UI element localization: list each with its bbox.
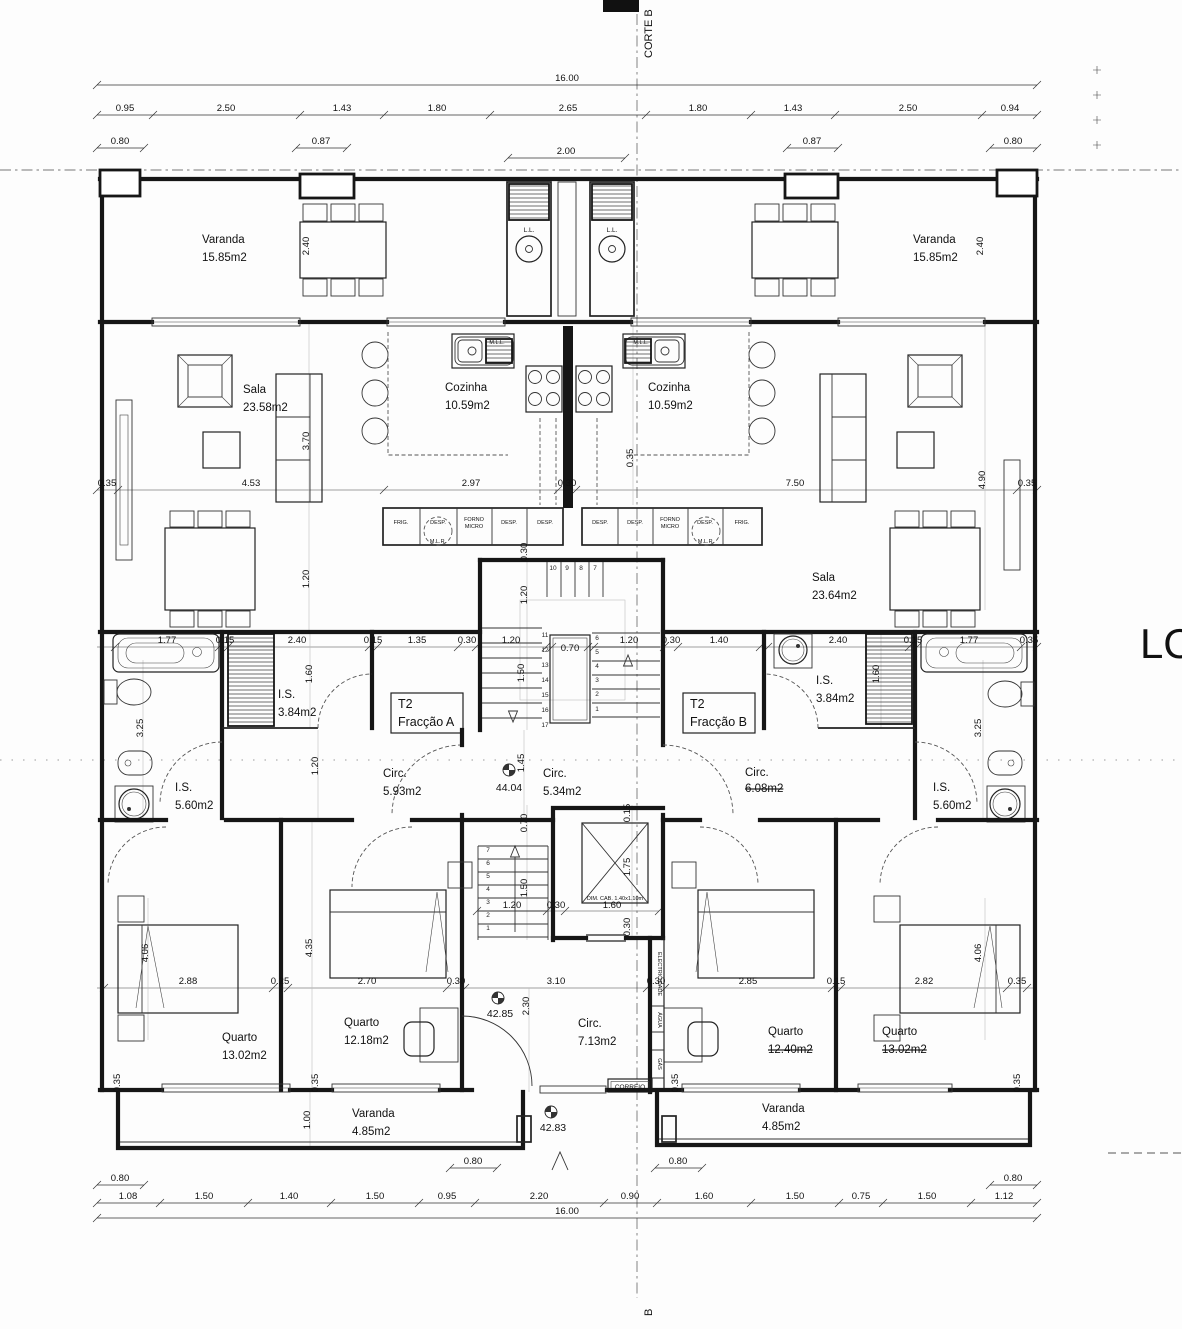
dim-v: 1.75 — [622, 858, 633, 877]
appliance-label: FRIG. — [394, 520, 409, 526]
dim: 0.15 — [827, 976, 846, 987]
room-label-quarto-4: Quarto — [882, 1026, 917, 1038]
dim: 1.77 — [158, 635, 177, 646]
utility-label-gas: GÁS — [656, 1058, 663, 1070]
washbasin-left — [115, 786, 153, 822]
dim: 0.80 — [111, 1173, 130, 1184]
dim: 0.95 — [116, 103, 135, 114]
room-label-varanda-bl: Varanda — [352, 1108, 395, 1120]
dining-table-right — [890, 511, 980, 627]
dim-v: 2.40 — [975, 237, 986, 256]
radiator-left — [116, 400, 132, 560]
step-number: 2 — [595, 691, 599, 698]
dim-v: 0.70 — [519, 814, 530, 833]
dim: 1.50 — [366, 1191, 385, 1202]
room-label-varanda-br: Varanda — [762, 1103, 805, 1115]
desk-chair-q3 — [664, 1008, 718, 1062]
fraction-labels: T2 Fracção A T2 Fracção B — [398, 697, 747, 729]
dim-bottom-total: 16.00 — [555, 1206, 579, 1217]
dim: 2.97 — [462, 478, 481, 489]
step-number: 3 — [595, 677, 599, 684]
elevator-cab-label: DIM. CAB. 1.40x1.10m — [587, 896, 644, 902]
kitchen-stools-left — [362, 342, 388, 444]
bed-q2 — [330, 862, 472, 978]
dim-v: 1.50 — [516, 664, 527, 683]
stove-right — [576, 366, 612, 412]
door-swing — [108, 827, 166, 885]
room-label-is56-right: I.S. — [933, 782, 950, 794]
step-number: 16 — [541, 707, 549, 714]
dim: 2.00 — [557, 146, 576, 157]
washer-label-right: L.L. — [607, 227, 618, 234]
dim: 0.35 — [98, 478, 117, 489]
dim: 1.43 — [784, 103, 803, 114]
dim: 0.30 — [547, 900, 566, 911]
bed-q4 — [874, 896, 1020, 1041]
section-label-bottom: B — [643, 1309, 655, 1316]
appliance-label: DESP. — [592, 520, 608, 526]
appliance-label: MICRO — [661, 524, 680, 530]
dim-v: 1.45 — [516, 754, 527, 773]
step-number: 6 — [486, 860, 490, 867]
washing-machine-left — [516, 236, 542, 262]
room-label-is34-left: I.S. — [278, 689, 295, 701]
dim: 2.65 — [559, 103, 578, 114]
washer-label-left: L.L. — [524, 227, 535, 234]
vent-hatch-left — [509, 184, 549, 220]
floorplan-drawing: 16.00 0.95 2.50 1.43 1.80 2.65 1.80 1.43… — [0, 0, 1182, 1329]
utility-label-electricity: ELECTRICIDADE — [656, 952, 662, 996]
dim: 2.40 — [829, 635, 848, 646]
dim: 3.10 — [547, 976, 566, 987]
dim: 1.50 — [786, 1191, 805, 1202]
dim: 1.77 — [960, 635, 979, 646]
coffee-table-right — [897, 432, 934, 468]
step-number: 17 — [541, 722, 549, 729]
pier — [100, 170, 140, 196]
bidet-left — [118, 751, 152, 775]
room-labels: Varanda 15.85m2 Varanda 15.85m2 Sala 23.… — [175, 234, 971, 1138]
step-number: 13 — [541, 662, 549, 669]
dim: 2.70 — [358, 976, 377, 987]
step-number: 8 — [579, 565, 583, 572]
dim: 2.82 — [915, 976, 934, 987]
armchair-left — [178, 355, 232, 407]
section-label-top: CORTE B — [643, 9, 655, 58]
dim: 1.20 — [620, 635, 639, 646]
step-number: 14 — [541, 677, 549, 684]
room-area-sala-left: 23.58m2 — [243, 402, 288, 414]
door-swing — [915, 742, 977, 804]
room-label-cozinha-left: Cozinha — [445, 382, 488, 394]
pier — [785, 174, 838, 198]
room-label-is56-left: I.S. — [175, 782, 192, 794]
dim: 0.75 — [852, 1191, 871, 1202]
room-area-is56-right: 5.60m2 — [933, 800, 971, 812]
dim-v: 1.20 — [519, 586, 530, 605]
dim: 0.80 — [464, 1156, 483, 1167]
room-label-varanda-tr: Varanda — [913, 234, 956, 246]
dim-v: 2.40 — [301, 237, 312, 256]
dim-v: 4.90 — [977, 471, 988, 490]
step-number: 3 — [486, 899, 490, 906]
pier — [997, 170, 1037, 196]
step-number: 1 — [595, 706, 599, 713]
door-swing — [663, 745, 733, 815]
step-number: 5 — [595, 649, 599, 656]
balcony-table-right — [752, 204, 838, 296]
room-area-quarto-3: 12.40m2 — [768, 1044, 813, 1056]
room-area-varanda-bl: 4.85m2 — [352, 1126, 390, 1138]
dishwasher-label-right: M.L.L. — [633, 340, 649, 346]
room-label-quarto-2: Quarto — [344, 1017, 379, 1029]
dim: 1.20 — [503, 900, 522, 911]
room-area-is34-left: 3.84m2 — [278, 707, 316, 719]
dim-v: 1.60 — [304, 665, 315, 684]
dim-top-total: 16.00 — [555, 73, 579, 84]
room-area-circ-hall: 5.34m2 — [543, 786, 581, 798]
room-label-is34-right: I.S. — [816, 675, 833, 687]
entrance-arrow — [552, 1152, 568, 1170]
step-number: 5 — [486, 873, 490, 880]
dim-v: 3.25 — [135, 719, 146, 738]
desk-chair-q2 — [404, 1008, 458, 1062]
toilet-right — [988, 681, 1034, 707]
dim: 0.30 — [447, 976, 466, 987]
room-label-circ-hall: Circ. — [543, 768, 567, 780]
dim-v: 1.50 — [519, 879, 530, 898]
bed-q1 — [118, 896, 238, 1041]
dim: 0.35 — [1020, 635, 1039, 646]
utility-label-water: ÁGUA — [656, 1012, 663, 1028]
dim-v: 0.35 — [625, 449, 636, 468]
dining-table-left — [165, 511, 255, 627]
coffee-table-left — [203, 432, 240, 468]
fraction-b-name: Fracção B — [690, 715, 747, 729]
elevator — [553, 808, 663, 941]
step-number: 7 — [486, 847, 490, 854]
lot-text: LO — [1140, 620, 1182, 667]
room-label-circ-b: Circ. — [745, 767, 769, 779]
kitchen-sink-right — [623, 334, 685, 368]
step-number: 1 — [486, 925, 490, 932]
vent-hatch-right — [592, 184, 632, 220]
room-label-sala-right: Sala — [812, 572, 836, 584]
step-number: 6 — [595, 635, 599, 642]
dim: 7.50 — [786, 478, 805, 489]
dim: 1.12 — [995, 1191, 1014, 1202]
dim: 0.80 — [1004, 136, 1023, 147]
bottom-band — [100, 1084, 1037, 1148]
door-swing — [764, 674, 818, 728]
step-number: 15 — [541, 692, 549, 699]
bidet-right — [988, 751, 1022, 775]
door-swing — [352, 827, 412, 887]
stove-left — [526, 366, 562, 412]
floorplan-sheet: 16.00 0.95 2.50 1.43 1.80 2.65 1.80 1.43… — [0, 0, 1182, 1329]
room-area-quarto-4: 13.02m2 — [882, 1044, 927, 1056]
level-value-hall: 42.85 — [487, 1008, 513, 1020]
appliance-label: DESP. — [501, 520, 517, 526]
room-area-is34-right: 3.84m2 — [816, 693, 854, 705]
dim: 1.40 — [280, 1191, 299, 1202]
stair-down-arrow — [509, 711, 518, 722]
dim-v: 4.06 — [140, 944, 151, 963]
dim-v: 0.35 — [670, 1074, 681, 1093]
appliance-label: DESP. — [627, 520, 643, 526]
dim: 2.50 — [899, 103, 918, 114]
appliance-label: DESP. — [537, 520, 553, 526]
room-area-circ-a: 5.93m2 — [383, 786, 421, 798]
dim-landing: 0.70 — [561, 643, 580, 654]
dim-v: 0.35 — [1012, 1074, 1023, 1093]
step-number: 4 — [486, 886, 490, 893]
dim: 0.80 — [1004, 1173, 1023, 1184]
dim: 1.35 — [408, 635, 427, 646]
dim: 1.50 — [918, 1191, 937, 1202]
radiator-left-inner — [120, 415, 128, 545]
toilet-left — [104, 679, 151, 705]
stair-core — [480, 560, 663, 938]
step-number: 9 — [565, 565, 569, 572]
step-number: 2 — [486, 912, 490, 919]
dim-v: 1.20 — [301, 570, 312, 589]
room-label-quarto-1: Quarto — [222, 1032, 257, 1044]
entry-door-swing — [462, 1016, 532, 1086]
balcony-table-left — [300, 204, 386, 296]
appliance-label: MICRO — [465, 524, 484, 530]
sofa-right — [820, 374, 866, 502]
dim: 1.60 — [695, 1191, 714, 1202]
dim-v: 3.70 — [301, 432, 312, 451]
dim: 2.88 — [179, 976, 198, 987]
door-swing — [318, 674, 372, 728]
dim-v: 0.15 — [622, 804, 633, 823]
room-area-varanda-br: 4.85m2 — [762, 1121, 800, 1133]
room-area-circ-entry: 7.13m2 — [578, 1036, 616, 1048]
dim-v: 0.35 — [310, 1074, 321, 1093]
dim: 2.20 — [530, 1191, 549, 1202]
dim: 0.90 — [621, 1191, 640, 1202]
fraction-a-title: T2 — [398, 697, 413, 711]
dim: 1.20 — [502, 635, 521, 646]
dishwasher-label-left: M.L.L. — [489, 340, 505, 346]
dim-v: 3.25 — [973, 719, 984, 738]
dim: 1.40 — [710, 635, 729, 646]
room-area-quarto-2: 12.18m2 — [344, 1035, 389, 1047]
room-label-quarto-3: Quarto — [768, 1026, 803, 1038]
dim-v: 1.00 — [302, 1111, 313, 1130]
step-number: 10 — [549, 565, 557, 572]
dim-v: 0.35 — [112, 1074, 123, 1093]
room-label-cozinha-right: Cozinha — [648, 382, 691, 394]
step-number: 11 — [542, 632, 549, 639]
step-number: 4 — [595, 663, 599, 670]
bed-q3 — [672, 862, 814, 978]
door-swing — [392, 745, 462, 815]
appliance-label: FORNO — [464, 517, 485, 523]
room-label-sala-left: Sala — [243, 384, 267, 396]
pier — [300, 174, 354, 198]
dim: 0.15 — [904, 635, 923, 646]
dryer-label-right: M.L.R. — [698, 539, 715, 545]
washing-machine-right — [599, 236, 625, 262]
dim: 1.43 — [333, 103, 352, 114]
dim-v: 1.20 — [310, 757, 321, 776]
dim-v: 0.30 — [519, 543, 530, 562]
fraction-b-title: T2 — [690, 697, 705, 711]
room-label-varanda-tl: Varanda — [202, 234, 245, 246]
balcony-right — [657, 1092, 1030, 1145]
dim: 2.50 — [217, 103, 236, 114]
room-area-circ-b: 6.08m2 — [745, 783, 783, 795]
dim-v: 0.30 — [622, 918, 633, 937]
dim: 0.35 — [1008, 976, 1027, 987]
dim: 0.30 — [662, 635, 681, 646]
room-area-varanda-tl: 15.85m2 — [202, 252, 247, 264]
dim: 4.53 — [242, 478, 261, 489]
dim: 0.30 — [558, 478, 577, 489]
step-number: 12 — [541, 647, 549, 654]
dim-v: 1.60 — [871, 665, 882, 684]
wardrobe-left — [228, 634, 274, 726]
duct-shaft — [558, 182, 576, 316]
fraction-a-name: Fracção A — [398, 715, 455, 729]
dim: 0.87 — [312, 136, 331, 147]
dim: 0.80 — [111, 136, 130, 147]
room-area-cozinha-right: 10.59m2 — [648, 400, 693, 412]
kitchens — [362, 326, 775, 545]
dim: 1.08 — [119, 1191, 138, 1202]
door-swing — [160, 742, 222, 804]
door-swing — [700, 827, 758, 885]
dim: 1.50 — [195, 1191, 214, 1202]
room-area-cozinha-left: 10.59m2 — [445, 400, 490, 412]
balcony-left — [118, 1092, 523, 1148]
kitchen-stools-right — [749, 342, 775, 444]
dim: 0.80 — [669, 1156, 688, 1167]
appliance-label: FORNO — [660, 517, 681, 523]
room-label-circ-entry: Circ. — [578, 1018, 602, 1030]
dim-v: 4.06 — [973, 944, 984, 963]
dim: 0.30 — [458, 635, 477, 646]
washbasin-right-top — [774, 634, 812, 668]
door-swing — [880, 827, 938, 885]
appliance-label: DESP. — [430, 520, 446, 526]
appliance-label: FRIG. — [735, 520, 750, 526]
radiator-right — [1004, 460, 1020, 570]
dim: 1.80 — [689, 103, 708, 114]
dim: 0.15 — [364, 635, 383, 646]
dim: 0.87 — [803, 136, 822, 147]
room-area-quarto-1: 13.02m2 — [222, 1050, 267, 1062]
dim: 0.95 — [438, 1191, 457, 1202]
washbasin-right — [987, 786, 1025, 822]
kitchen-sink-left — [452, 334, 514, 368]
dim: 0.94 — [1001, 103, 1020, 114]
dim: 2.40 — [288, 635, 307, 646]
dryer-label-left: M.L.R. — [430, 539, 447, 545]
step-number: 7 — [593, 565, 597, 572]
dim-v: 2.30 — [521, 997, 532, 1016]
sofa-left — [276, 374, 322, 502]
level-value-upper: 44.04 — [496, 782, 522, 794]
appliance-label: DESP. — [697, 520, 713, 526]
dim-v: 4.35 — [304, 939, 315, 958]
room-area-is56-left: 5.60m2 — [175, 800, 213, 812]
dim: 0.25 — [271, 976, 290, 987]
dim: 2.85 — [739, 976, 758, 987]
level-value-entry: 42.83 — [540, 1122, 566, 1134]
room-area-varanda-tr: 15.85m2 — [913, 252, 958, 264]
mailbox-label: CORREIO — [615, 1084, 645, 1091]
section-mark-top — [603, 0, 639, 12]
room-label-circ-a: Circ. — [383, 768, 407, 780]
armchair-right — [908, 355, 962, 407]
room-area-sala-right: 23.64m2 — [812, 590, 857, 602]
dim: 1.80 — [428, 103, 447, 114]
dim: 0.15 — [216, 635, 235, 646]
dim: 0.35 — [1018, 478, 1037, 489]
